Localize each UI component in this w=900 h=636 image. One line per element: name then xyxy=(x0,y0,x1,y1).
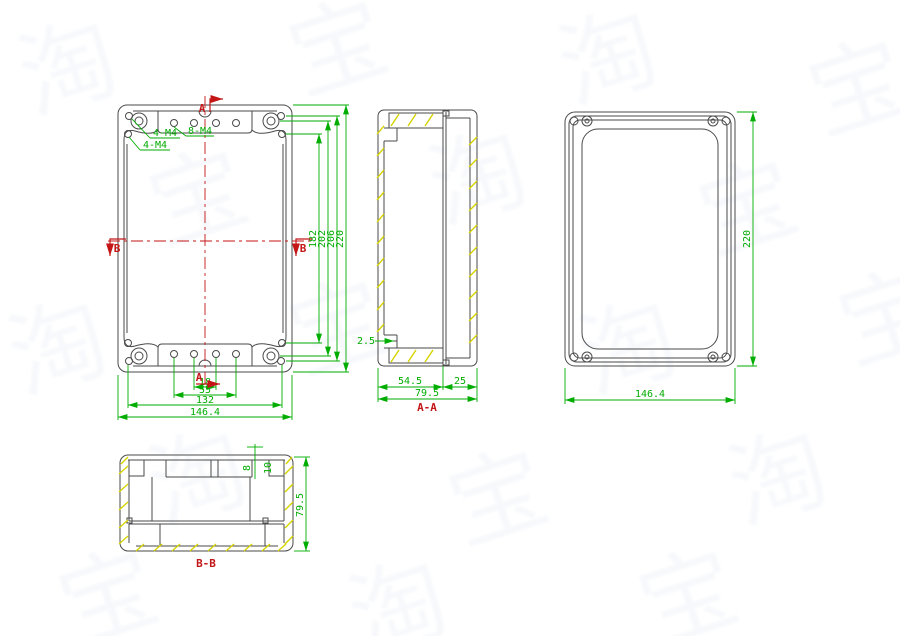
section-marker-a-top: A xyxy=(199,102,206,115)
callout-8m4: 8-M4 xyxy=(188,126,212,137)
section-aa-dimensions: 2.5 54.5 25 79.5 xyxy=(357,336,477,402)
dim-bb-10: 10 xyxy=(263,462,274,474)
section-aa-hatching xyxy=(377,114,477,362)
technical-drawing-canvas: 淘 宝 淘 宝 宝 淘 宝 淘 宝 淘 宝 淘 宝 淘 宝 淘 宝 xyxy=(0,0,900,636)
section-aa-title-group: A-A xyxy=(417,401,437,414)
back-view-outline xyxy=(565,112,735,366)
callout-4m4-top: 4-M4 xyxy=(153,128,177,139)
front-vertical-dimensions: 182 202 206 220 xyxy=(280,105,349,372)
section-marker-a-bottom: A xyxy=(196,371,203,384)
back-outer-wall xyxy=(565,112,735,366)
dim-bb-8: 8 xyxy=(242,465,253,471)
dim-54-5: 54.5 xyxy=(398,376,422,387)
dim-back-220: 220 xyxy=(742,230,753,248)
back-corner-screws xyxy=(570,116,730,362)
callout-4m4-bottom: 4-M4 xyxy=(143,140,167,151)
section-marker-b-right: B xyxy=(300,242,307,255)
front-centerlines xyxy=(108,96,312,384)
back-view: 220 146.4 xyxy=(565,112,757,404)
section-bb-view: 8 10 79.5 B-B xyxy=(119,444,310,570)
dim-79-5: 79.5 xyxy=(415,388,439,399)
dim-146-4: 146.4 xyxy=(190,407,220,418)
section-aa-title: A-A xyxy=(417,401,437,414)
section-aa-outline xyxy=(378,110,477,366)
dim-bb-79-5: 79.5 xyxy=(295,493,306,517)
dim-220: 220 xyxy=(335,230,346,248)
section-aa-view: 2.5 54.5 25 79.5 A-A xyxy=(357,110,477,414)
section-bb-title-group: B-B xyxy=(196,557,216,570)
dim-2-5: 2.5 xyxy=(357,336,375,347)
dim-25: 25 xyxy=(454,376,466,387)
front-view: 4-M4 4-M4 8-M4 182 202 206 220 xyxy=(108,96,349,420)
dim-back-146-4: 146.4 xyxy=(635,389,665,400)
section-marker-b-left: B xyxy=(114,242,121,255)
aa-outer-wall xyxy=(378,110,477,366)
back-inner-face xyxy=(582,129,718,349)
section-bb-title: B-B xyxy=(196,557,216,570)
dim-132: 132 xyxy=(196,395,214,406)
front-section-markers: A A B B xyxy=(110,99,312,384)
drawing-svg: 4-M4 4-M4 8-M4 182 202 206 220 xyxy=(0,0,900,636)
